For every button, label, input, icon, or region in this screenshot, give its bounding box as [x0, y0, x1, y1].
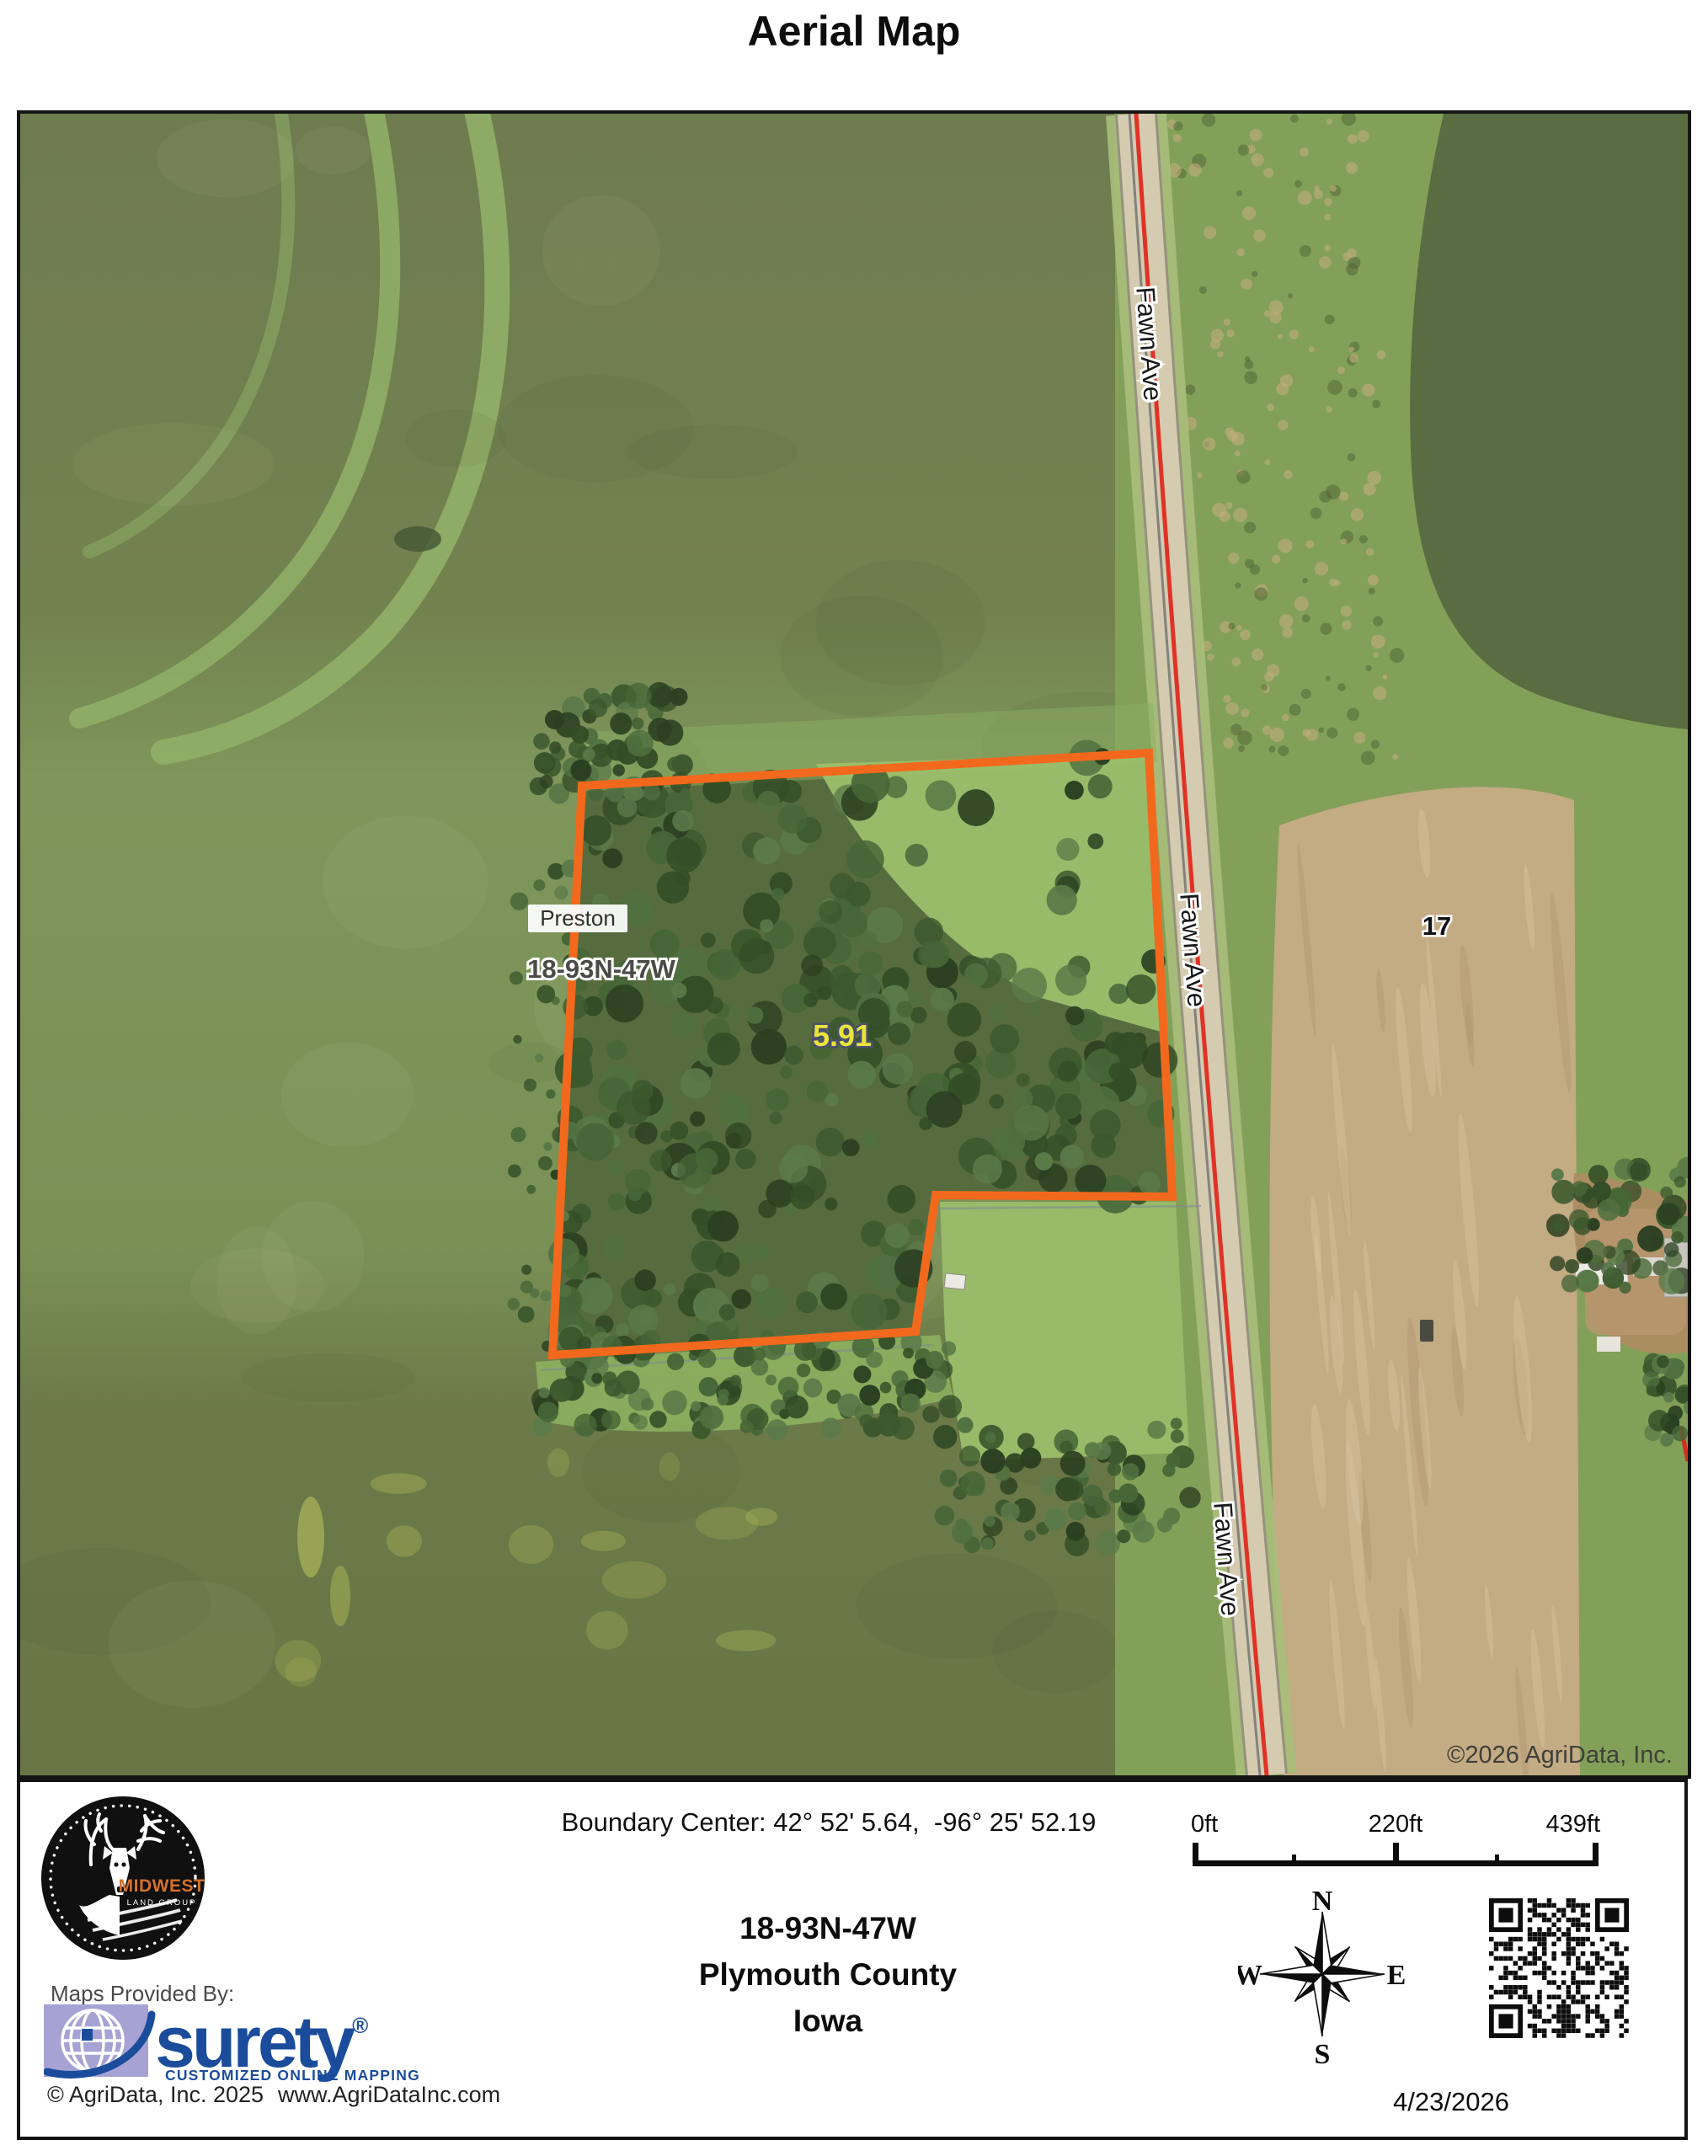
compass-s: S	[1315, 2039, 1331, 2070]
aerial-map-page: Aerial Map	[0, 0, 1708, 2156]
township-label: 18-93N-47W	[527, 954, 675, 984]
section-label: 17	[1422, 911, 1451, 941]
place-label: Preston	[540, 905, 616, 931]
map-copyright: ©2026 AgriData, Inc.	[1447, 1742, 1673, 1769]
location-township: 18-93N-47W	[643, 1905, 1013, 1951]
farm-building	[1597, 1337, 1620, 1352]
location-state: Iowa	[643, 1998, 1013, 2044]
midwest-land-group-logo: MIDWEST LAND GROUP	[39, 1794, 207, 1962]
scale-mid: 220ft	[1191, 1811, 1600, 1838]
surety-logo: surety®	[155, 1989, 368, 2079]
location-county: Plymouth County	[643, 1951, 1013, 1998]
logo-subname: LAND GROUP	[127, 1898, 197, 1908]
shed	[944, 1273, 966, 1289]
scale-max: 439ft	[1546, 1811, 1601, 1838]
map-footer: MIDWEST LAND GROUP Maps Provided By: sur…	[17, 1779, 1688, 2140]
compass-n: N	[1312, 1886, 1333, 1917]
scale-bar	[1191, 1843, 1600, 1868]
aerial-map: Preston 18-93N-47W 5.91 17 Fawn Ave Fawn…	[17, 110, 1691, 1779]
logo-name: MIDWEST	[119, 1876, 205, 1896]
map-date: 4/23/2026	[1358, 2087, 1544, 2117]
scale-bar-labels: 0ft 220ft 439ft	[1191, 1811, 1600, 1839]
compass-w: W	[1238, 1960, 1262, 1991]
registered-mark: ®	[352, 2013, 368, 2038]
acreage-label: 5.91	[813, 1018, 872, 1053]
agridata-website: www.AgriDataInc.com	[278, 2082, 500, 2108]
page-title: Aerial Map	[0, 7, 1708, 56]
compass-e: E	[1387, 1960, 1406, 1991]
qr-code	[1489, 1898, 1629, 2038]
surety-globe-icon	[44, 2003, 170, 2080]
location-block: 18-93N-47W Plymouth County Iowa	[643, 1905, 1013, 2044]
field-bush	[394, 526, 441, 552]
aerial-imagery: Preston 18-93N-47W 5.91 17 Fawn Ave Fawn…	[20, 114, 1688, 1775]
compass-rose: N S E W	[1238, 1886, 1406, 2075]
field-implement	[1420, 1320, 1433, 1342]
agridata-copyright: © AgriData, Inc. 2025	[47, 2082, 264, 2108]
boundary-center-coords: Boundary Center: 42° 52' 5.64, -96° 25' …	[475, 1807, 1182, 1838]
